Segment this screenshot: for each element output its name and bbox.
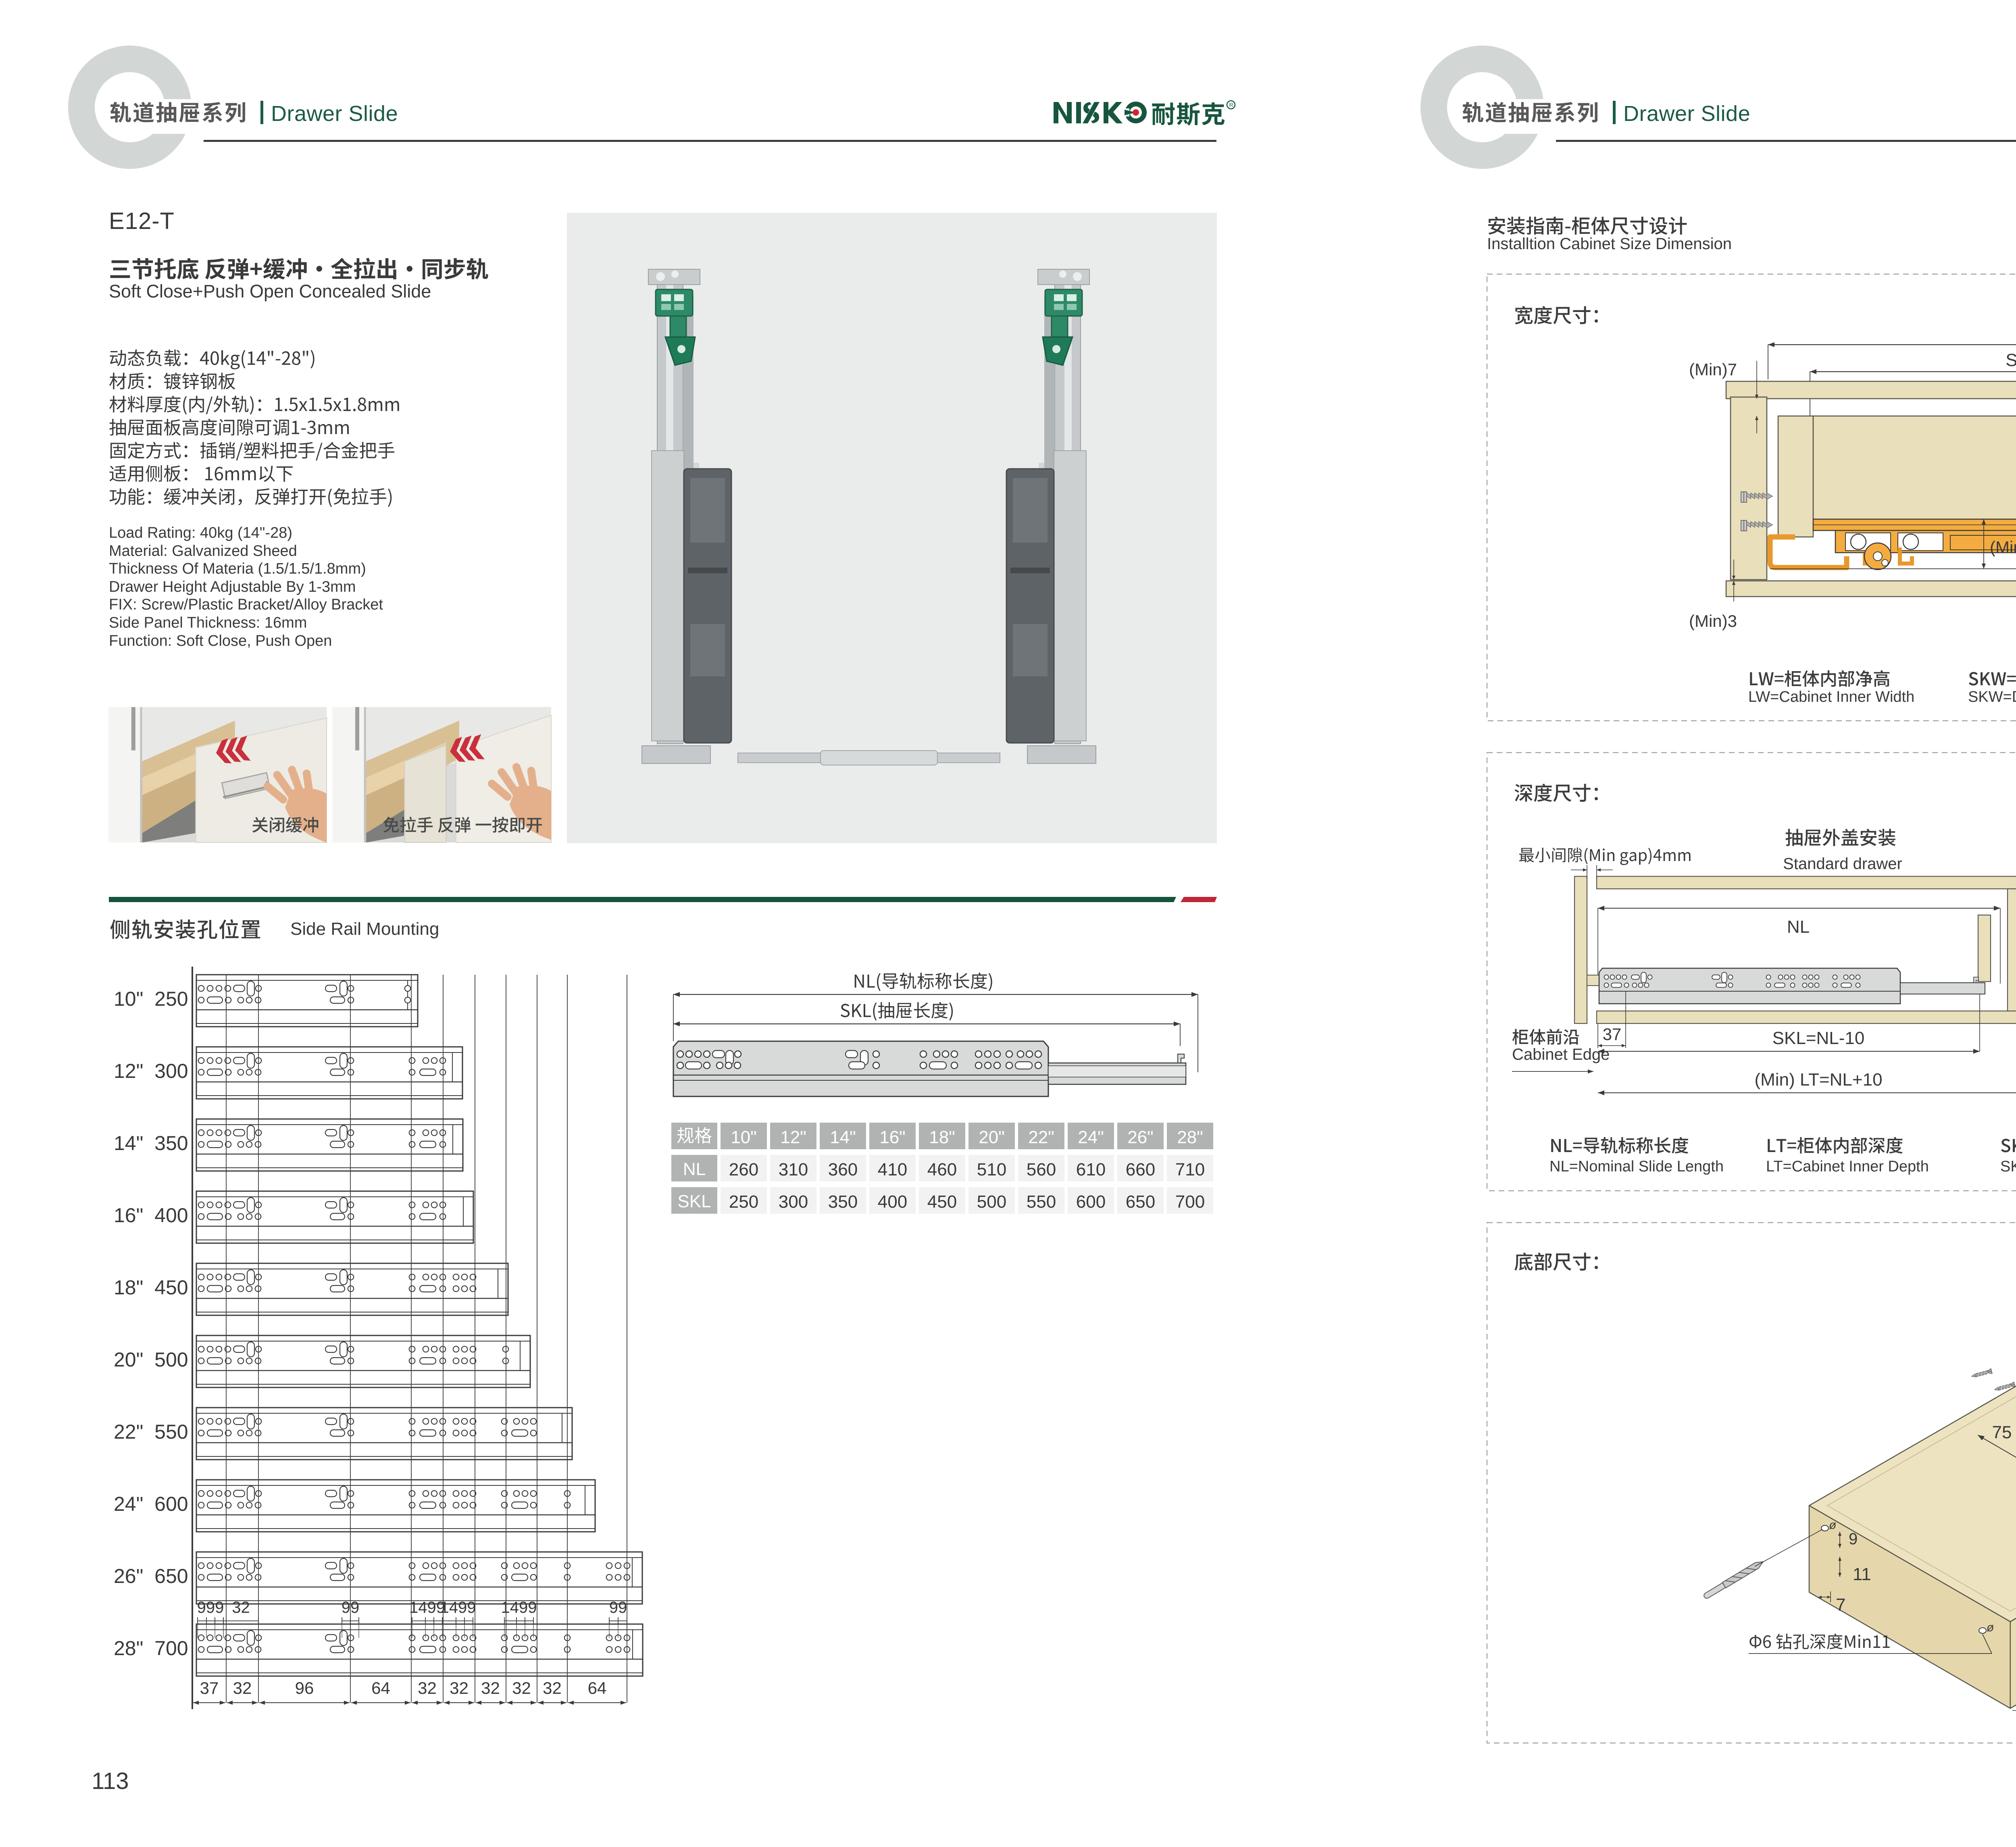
svg-text:R: R (1229, 102, 1233, 108)
